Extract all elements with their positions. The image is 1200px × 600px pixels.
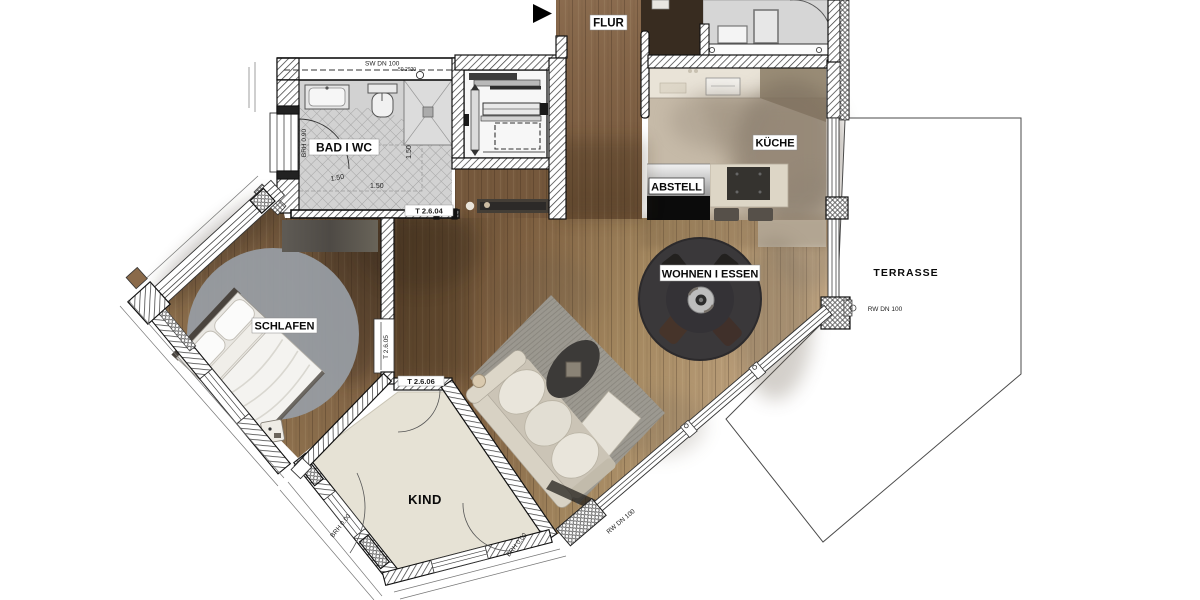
svg-text:1.50: 1.50 [370, 183, 384, 190]
svg-text:T 2.6.04: T 2.6.04 [415, 207, 443, 216]
svg-text:BRH 0.90: BRH 0.90 [301, 129, 308, 158]
svg-text:BAD I WC: BAD I WC [316, 141, 372, 155]
svg-text:FLUR: FLUR [593, 18, 624, 30]
svg-text:1.50: 1.50 [406, 145, 413, 159]
svg-text:WOHNEN I ESSEN: WOHNEN I ESSEN [662, 269, 759, 281]
svg-text:KÜCHE: KÜCHE [755, 137, 794, 150]
svg-text:SCHLAFEN: SCHLAFEN [255, 321, 315, 333]
svg-text:ABSTELL: ABSTELL [651, 182, 702, 194]
svg-text:TERRASSE: TERRASSE [873, 267, 938, 279]
svg-text:KIND: KIND [408, 492, 442, 507]
svg-text:RW DN 100: RW DN 100 [868, 306, 903, 313]
svg-text:T 2.6.06: T 2.6.06 [407, 377, 435, 386]
svg-text:SW DN 100: SW DN 100 [365, 61, 400, 68]
svg-text:50 2920: 50 2920 [398, 67, 416, 73]
svg-text:T 2.6.05: T 2.6.05 [383, 335, 390, 359]
